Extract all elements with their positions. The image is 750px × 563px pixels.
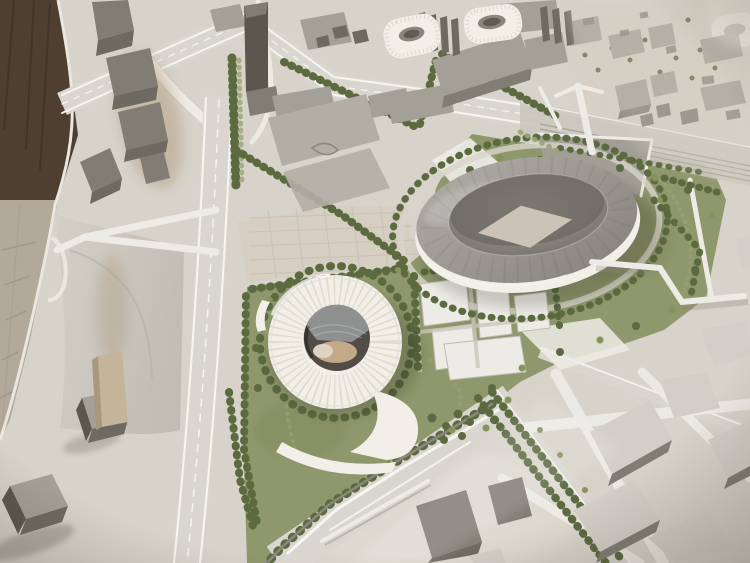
model-photo (0, 0, 750, 563)
lighting-effects (0, 0, 750, 563)
